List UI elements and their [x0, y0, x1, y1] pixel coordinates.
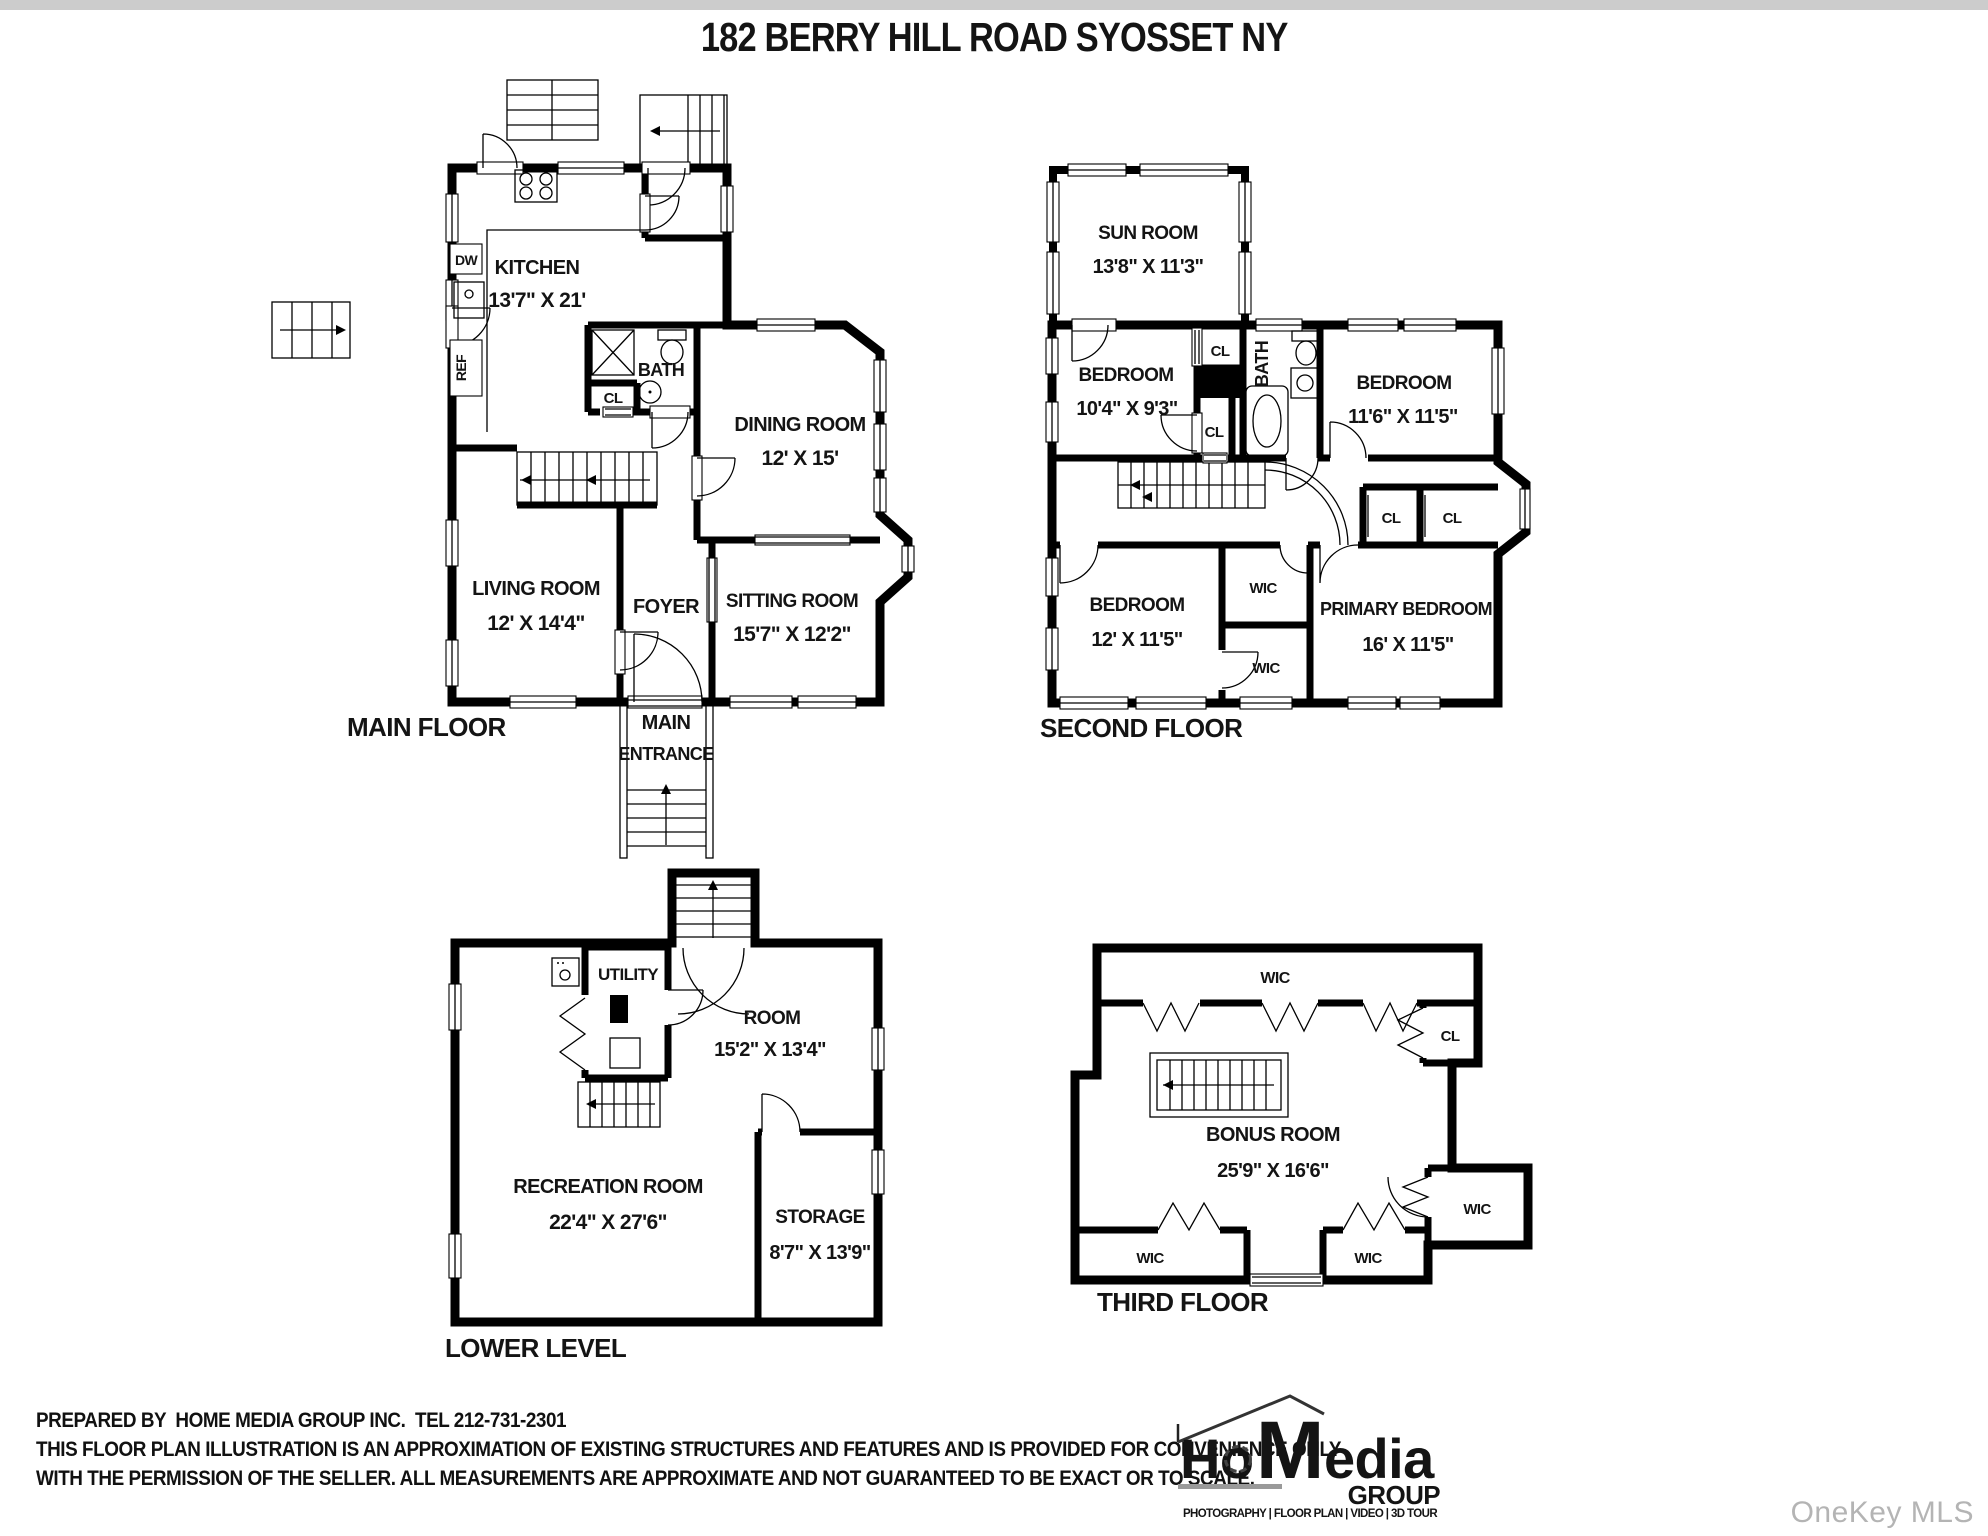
dims-storage: 8'7" X 13'9"	[769, 1242, 870, 1264]
second-floor-plan: SUN ROOM 13'8" X 11'3" BEDROOM 10'4" X 9…	[1040, 160, 1560, 760]
label-cl: CL	[604, 390, 623, 407]
dims-bedroom3: 12' X 11'5"	[1091, 629, 1182, 651]
third-floor-plan: WIC CL BONUS ROOM 25'9" X 16'6" WIC WIC …	[1055, 940, 1575, 1340]
logo-word-m: M	[1256, 1405, 1324, 1496]
dims-room: 15'2" X 13'4"	[714, 1039, 826, 1061]
page-title: 182 BERRY HILL ROAD SYOSSET NY	[0, 14, 1988, 61]
floor-plan-sheet: 182 BERRY HILL ROAD SYOSSET NY	[0, 0, 1988, 1536]
label-entrance-2: ENTRANCE	[618, 744, 714, 764]
floor-label-lower: LOWER LEVEL	[445, 1333, 627, 1363]
dims-dining: 12' X 15'	[762, 447, 839, 470]
label-room: ROOM	[744, 1008, 801, 1029]
disclaimer-line-1: PREPARED BY HOME MEDIA GROUP INC. TEL 21…	[36, 1406, 1341, 1435]
label-ref: REF	[453, 354, 469, 381]
label-bonus: BONUS ROOM	[1206, 1124, 1340, 1146]
label-primary: PRIMARY BEDROOM	[1320, 599, 1492, 619]
dims-primary: 16' X 11'5"	[1362, 634, 1453, 656]
dims-bedroom2: 11'6" X 11'5"	[1348, 406, 1458, 428]
label-entrance-1: MAIN	[642, 712, 691, 734]
logo-word-ho: Ho	[1180, 1427, 1253, 1490]
label-living: LIVING ROOM	[472, 578, 600, 600]
side-stoop-stairs	[272, 302, 350, 358]
label-wic-left: WIC	[1136, 1250, 1164, 1267]
dims-bedroom1: 10'4" X 9'3"	[1076, 398, 1177, 420]
label-utility: UTILITY	[598, 965, 659, 984]
disclaimer-line-3: WITH THE PERMISSION OF THE SELLER. ALL M…	[36, 1464, 1341, 1493]
label-cl-top: CL	[1211, 343, 1230, 360]
disclaimer-line-2: THIS FLOOR PLAN ILLUSTRATION IS AN APPRO…	[36, 1435, 1341, 1464]
floor-label-second: SECOND FLOOR	[1040, 713, 1243, 743]
label-cl3: CL	[1441, 1028, 1460, 1045]
dormer-opening	[1250, 1274, 1323, 1286]
floor-label-main: MAIN FLOOR	[347, 712, 506, 742]
label-recreation: RECREATION ROOM	[513, 1176, 703, 1198]
label-cl-mid: CL	[1205, 424, 1224, 441]
label-sunroom: SUN ROOM	[1098, 223, 1198, 244]
lower-level-plan: UTILITY ROOM 15'2" X 13'4" RECREATION RO…	[440, 865, 910, 1385]
label-bath: BATH	[638, 360, 684, 380]
dims-sunroom: 13'8" X 11'3"	[1093, 256, 1204, 278]
water-heater-icon	[610, 995, 628, 1023]
label-wic-top: WIC	[1260, 970, 1290, 987]
homedia-logo: Ho M edia GROUP PHOTOGRAPHY | FLOOR PLAN…	[1172, 1388, 1502, 1520]
logo-rule	[1178, 1484, 1282, 1489]
dims-kitchen: 13'7" X 21'	[488, 289, 585, 312]
back-porch-stairs	[507, 80, 598, 140]
mls-watermark: OneKey MLS	[1791, 1496, 1974, 1530]
dims-recreation: 22'4" X 27'6"	[549, 1211, 667, 1234]
dims-bonus: 25'9" X 16'6"	[1217, 1160, 1329, 1182]
label-cl-a: CL	[1382, 510, 1401, 527]
label-wic2: WIC	[1252, 660, 1280, 677]
label-dw: DW	[455, 252, 479, 268]
label-foyer: FOYER	[633, 596, 700, 618]
label-bedroom3: BEDROOM	[1089, 595, 1184, 616]
label-wic1: WIC	[1249, 580, 1277, 597]
logo-tagline: PHOTOGRAPHY | FLOOR PLAN | VIDEO | 3D TO…	[1183, 1508, 1438, 1520]
label-sitting: SITTING ROOM	[726, 591, 858, 612]
label-storage: STORAGE	[775, 1207, 864, 1228]
label-cl-b: CL	[1443, 510, 1462, 527]
dims-living: 12' X 14'4"	[487, 612, 584, 635]
label-kitchen: KITCHEN	[495, 257, 580, 279]
wall-chunk	[1197, 365, 1243, 398]
label-bedroom2: BEDROOM	[1356, 373, 1451, 394]
sunroom-walls	[1053, 170, 1245, 329]
label-wic-center: WIC	[1354, 1250, 1382, 1267]
logo-group: GROUP	[1348, 1480, 1441, 1510]
label-dining: DINING ROOM	[734, 414, 865, 436]
floor-label-third: THIRD FLOOR	[1097, 1287, 1269, 1317]
top-gray-bar	[0, 0, 1988, 10]
rear-landing-stairs	[640, 95, 727, 168]
dims-sitting: 15'7" X 12'2"	[733, 623, 851, 646]
label-bedroom1: BEDROOM	[1078, 365, 1173, 386]
label-wic-right: WIC	[1463, 1201, 1491, 1218]
main-floor-plan: DW REF KITCHEN 13'7" X 21' BATH CL DININ…	[260, 78, 920, 878]
label-bath2: BATH	[1252, 341, 1272, 387]
